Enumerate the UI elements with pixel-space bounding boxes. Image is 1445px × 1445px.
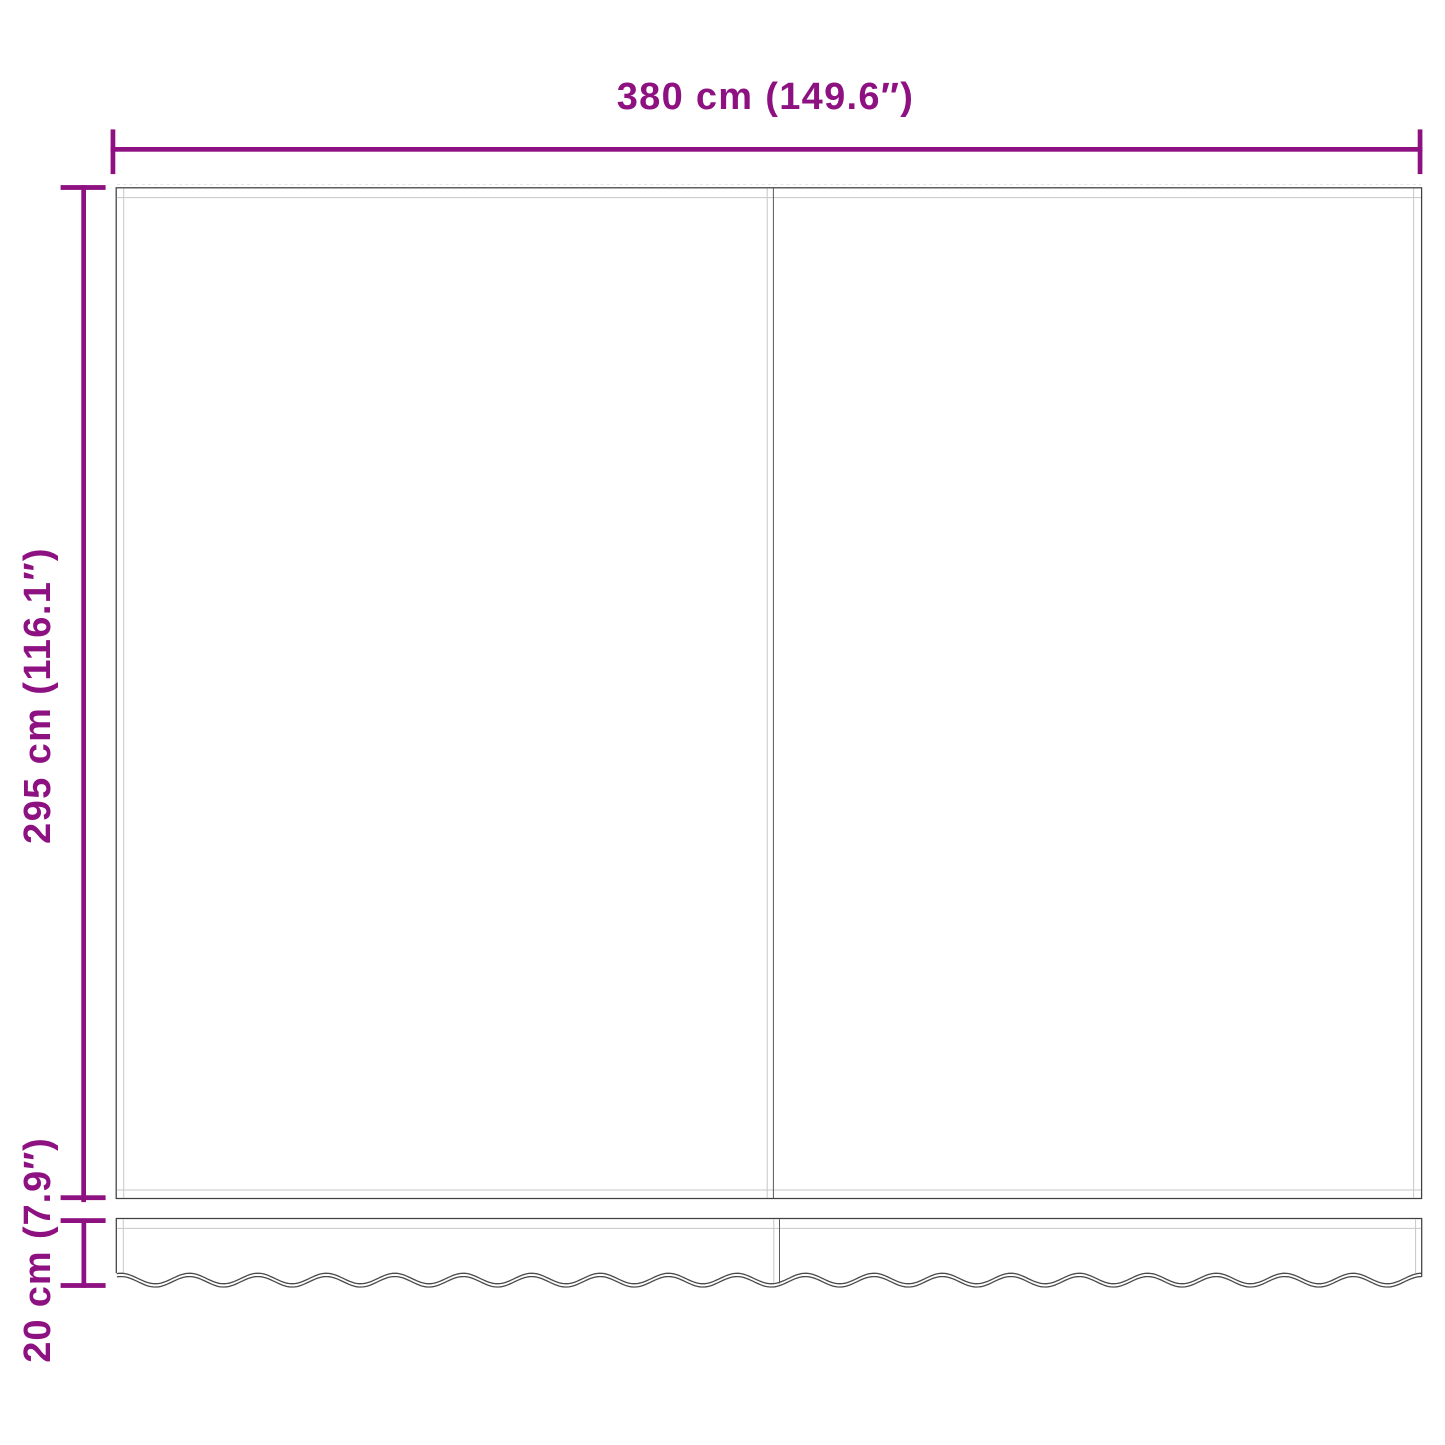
svg-text:380 cm (149.6″): 380 cm (149.6″) <box>617 76 915 118</box>
svg-text:20 cm (7.9″): 20 cm (7.9″) <box>17 1137 59 1362</box>
svg-text:295 cm (116.1″): 295 cm (116.1″) <box>17 547 59 844</box>
